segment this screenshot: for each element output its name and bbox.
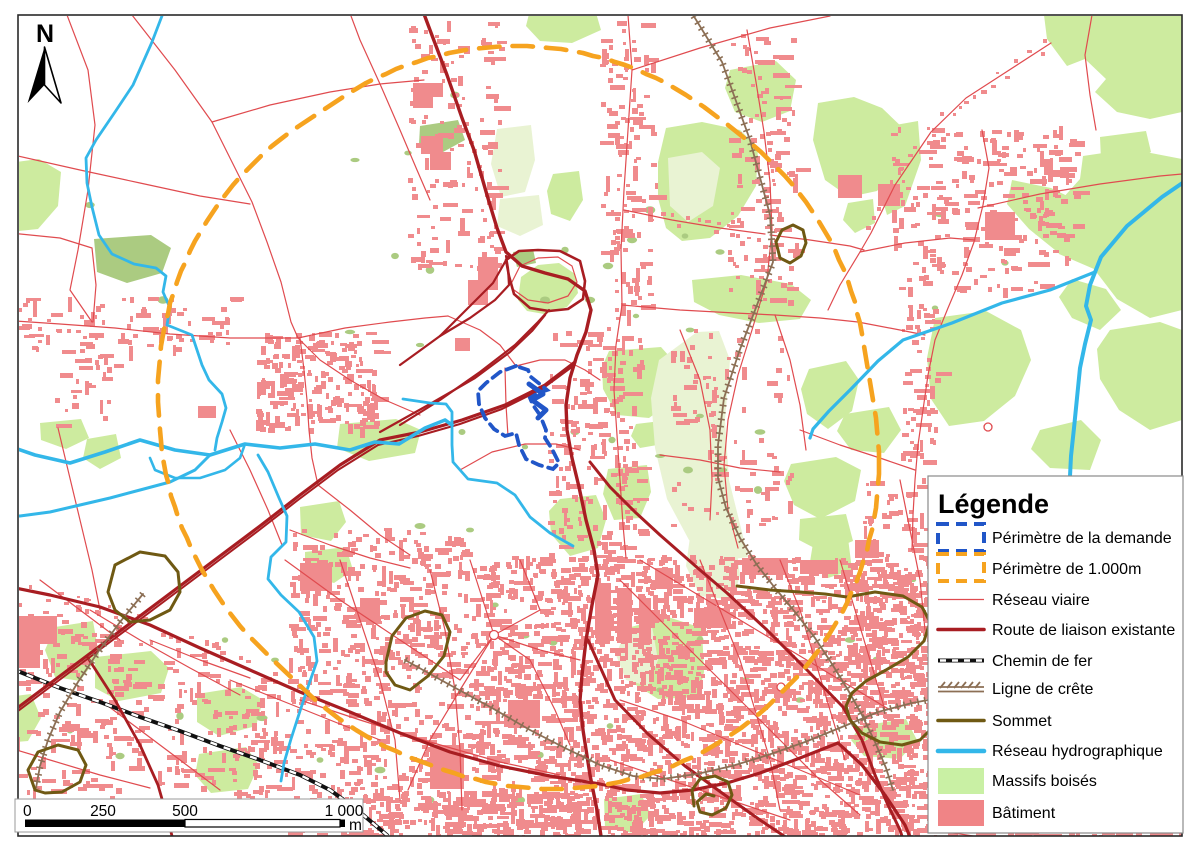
- svg-text:Route de liaison existante: Route de liaison existante: [992, 622, 1175, 639]
- svg-text:Réseau hydrographique: Réseau hydrographique: [992, 743, 1163, 760]
- svg-text:Chemin de fer: Chemin de fer: [992, 653, 1093, 670]
- svg-text:m: m: [349, 817, 362, 834]
- svg-text:Massifs boisés: Massifs boisés: [992, 773, 1097, 790]
- svg-text:0: 0: [23, 803, 32, 820]
- svg-text:Bâtiment: Bâtiment: [992, 805, 1056, 822]
- svg-text:Réseau viaire: Réseau viaire: [992, 592, 1090, 609]
- svg-text:Périmètre de 1.000m: Périmètre de 1.000m: [992, 561, 1141, 578]
- svg-text:N: N: [36, 20, 54, 48]
- svg-text:Sommet: Sommet: [992, 713, 1052, 730]
- svg-text:250: 250: [90, 803, 116, 820]
- svg-text:Légende: Légende: [938, 489, 1049, 519]
- svg-text:Ligne de crête: Ligne de crête: [992, 681, 1094, 698]
- svg-text:Périmètre de la demande: Périmètre de la demande: [992, 530, 1172, 547]
- svg-text:500: 500: [172, 803, 198, 820]
